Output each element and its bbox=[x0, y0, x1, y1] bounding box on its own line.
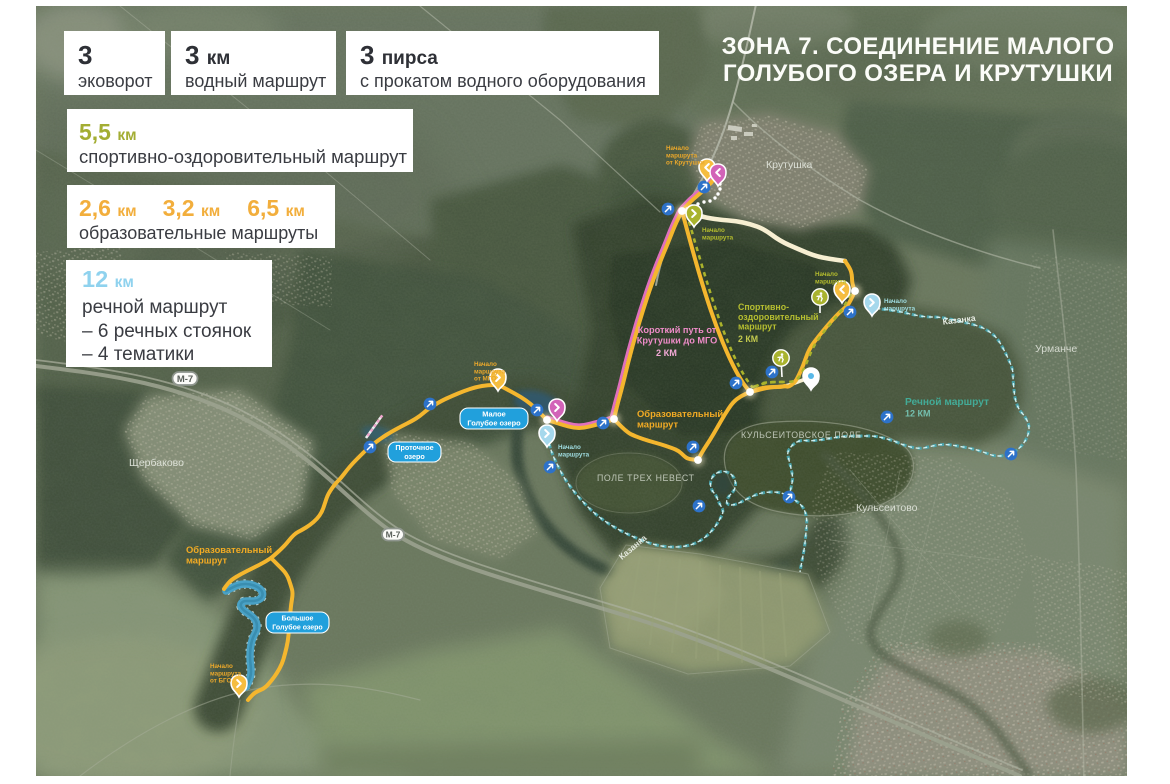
svg-text:Кульсеитово: Кульсеитово bbox=[856, 502, 918, 514]
svg-text:спортивно-оздоровительный марш: спортивно-оздоровительный маршрут bbox=[79, 146, 408, 167]
svg-text:маршрута: маршрута bbox=[474, 368, 506, 375]
svg-text:Голубое озеро: Голубое озеро bbox=[272, 623, 322, 631]
svg-text:Образовательный: Образовательный bbox=[186, 544, 272, 555]
svg-text:маршрута: маршрута bbox=[558, 451, 590, 458]
svg-text:эковорот: эковорот bbox=[78, 71, 153, 91]
svg-text:2 КМ: 2 КМ bbox=[656, 348, 677, 358]
svg-text:– 6 речных стоянок: – 6 речных стоянок bbox=[82, 321, 252, 342]
svg-text:КУЛЬСЕИТОВСКОЕ ПОЛЕ: КУЛЬСЕИТОВСКОЕ ПОЛЕ bbox=[741, 430, 861, 440]
svg-text:Малое: Малое bbox=[482, 410, 506, 419]
svg-text:Начало: Начало bbox=[474, 361, 497, 368]
svg-text:маршрут: маршрут bbox=[637, 419, 678, 430]
svg-text:Большое: Большое bbox=[282, 616, 314, 623]
svg-text:маршрута: маршрута bbox=[210, 670, 242, 677]
svg-text:12 КМ: 12 КМ bbox=[905, 409, 931, 419]
svg-text:маршрут: маршрут bbox=[738, 322, 777, 332]
svg-text:Голубое озеро: Голубое озеро bbox=[467, 419, 521, 428]
svg-text:М-7: М-7 bbox=[386, 530, 401, 540]
svg-text:от МГО: от МГО bbox=[474, 376, 496, 383]
svg-text:маршрута: маршрута bbox=[884, 305, 916, 312]
svg-text:2,6 км3,2 км6,5 км: 2,6 км3,2 км6,5 км bbox=[79, 195, 305, 221]
svg-text:от БГО: от БГО bbox=[210, 678, 232, 685]
svg-text:Щербаково: Щербаково bbox=[129, 457, 184, 469]
svg-text:Крутушка: Крутушка bbox=[766, 159, 813, 171]
svg-text:Начало: Начало bbox=[815, 271, 838, 278]
svg-text:маршрута: маршрута bbox=[815, 278, 847, 285]
svg-text:с прокатом водного оборудовани: с прокатом водного оборудования bbox=[360, 71, 646, 91]
svg-text:ЗОНА 7. СОЕДИНЕНИЕ МАЛОГО: ЗОНА 7. СОЕДИНЕНИЕ МАЛОГО bbox=[722, 33, 1115, 60]
svg-text:Речной маршрут: Речной маршрут bbox=[905, 397, 989, 408]
svg-text:озеро: озеро bbox=[404, 452, 425, 461]
svg-text:маршрута: маршрута bbox=[666, 152, 698, 159]
svg-text:Начало: Начало bbox=[884, 298, 907, 305]
svg-text:– 4 тематики: – 4 тематики bbox=[82, 344, 194, 365]
svg-text:оздоровительный: оздоровительный bbox=[738, 312, 819, 322]
svg-text:маршрута: маршрута bbox=[702, 234, 734, 241]
svg-text:водный маршрут: водный маршрут bbox=[185, 71, 326, 91]
svg-text:3: 3 bbox=[78, 40, 92, 70]
svg-text:Образовательный: Образовательный bbox=[637, 408, 723, 419]
svg-text:Урманче: Урманче bbox=[1035, 343, 1077, 355]
svg-text:Короткий путь от: Короткий путь от bbox=[638, 325, 717, 335]
svg-text:Начало: Начало bbox=[666, 145, 689, 152]
svg-text:Начало: Начало bbox=[210, 663, 233, 670]
svg-text:ГОЛУБОГО ОЗЕРА И КРУТУШКИ: ГОЛУБОГО ОЗЕРА И КРУТУШКИ bbox=[723, 60, 1113, 87]
svg-text:М-7: М-7 bbox=[177, 374, 193, 385]
svg-text:образовательные маршруты: образовательные маршруты bbox=[79, 223, 318, 243]
svg-text:от Крутушки: от Крутушки bbox=[666, 160, 705, 167]
svg-text:Начало: Начало bbox=[558, 444, 581, 451]
svg-text:Начало: Начало bbox=[702, 227, 725, 234]
svg-text:2 КМ: 2 КМ bbox=[738, 334, 758, 344]
svg-text:речной маршрут: речной маршрут bbox=[82, 297, 228, 318]
svg-text:маршрут: маршрут bbox=[186, 555, 227, 566]
svg-text:Крутушки до МГО: Крутушки до МГО bbox=[637, 336, 718, 346]
svg-text:Спортивно-: Спортивно- bbox=[738, 302, 789, 312]
svg-text:ПОЛЕ ТРЕХ НЕВЕСТ: ПОЛЕ ТРЕХ НЕВЕСТ bbox=[597, 473, 695, 483]
svg-text:Проточное: Проточное bbox=[395, 443, 433, 452]
